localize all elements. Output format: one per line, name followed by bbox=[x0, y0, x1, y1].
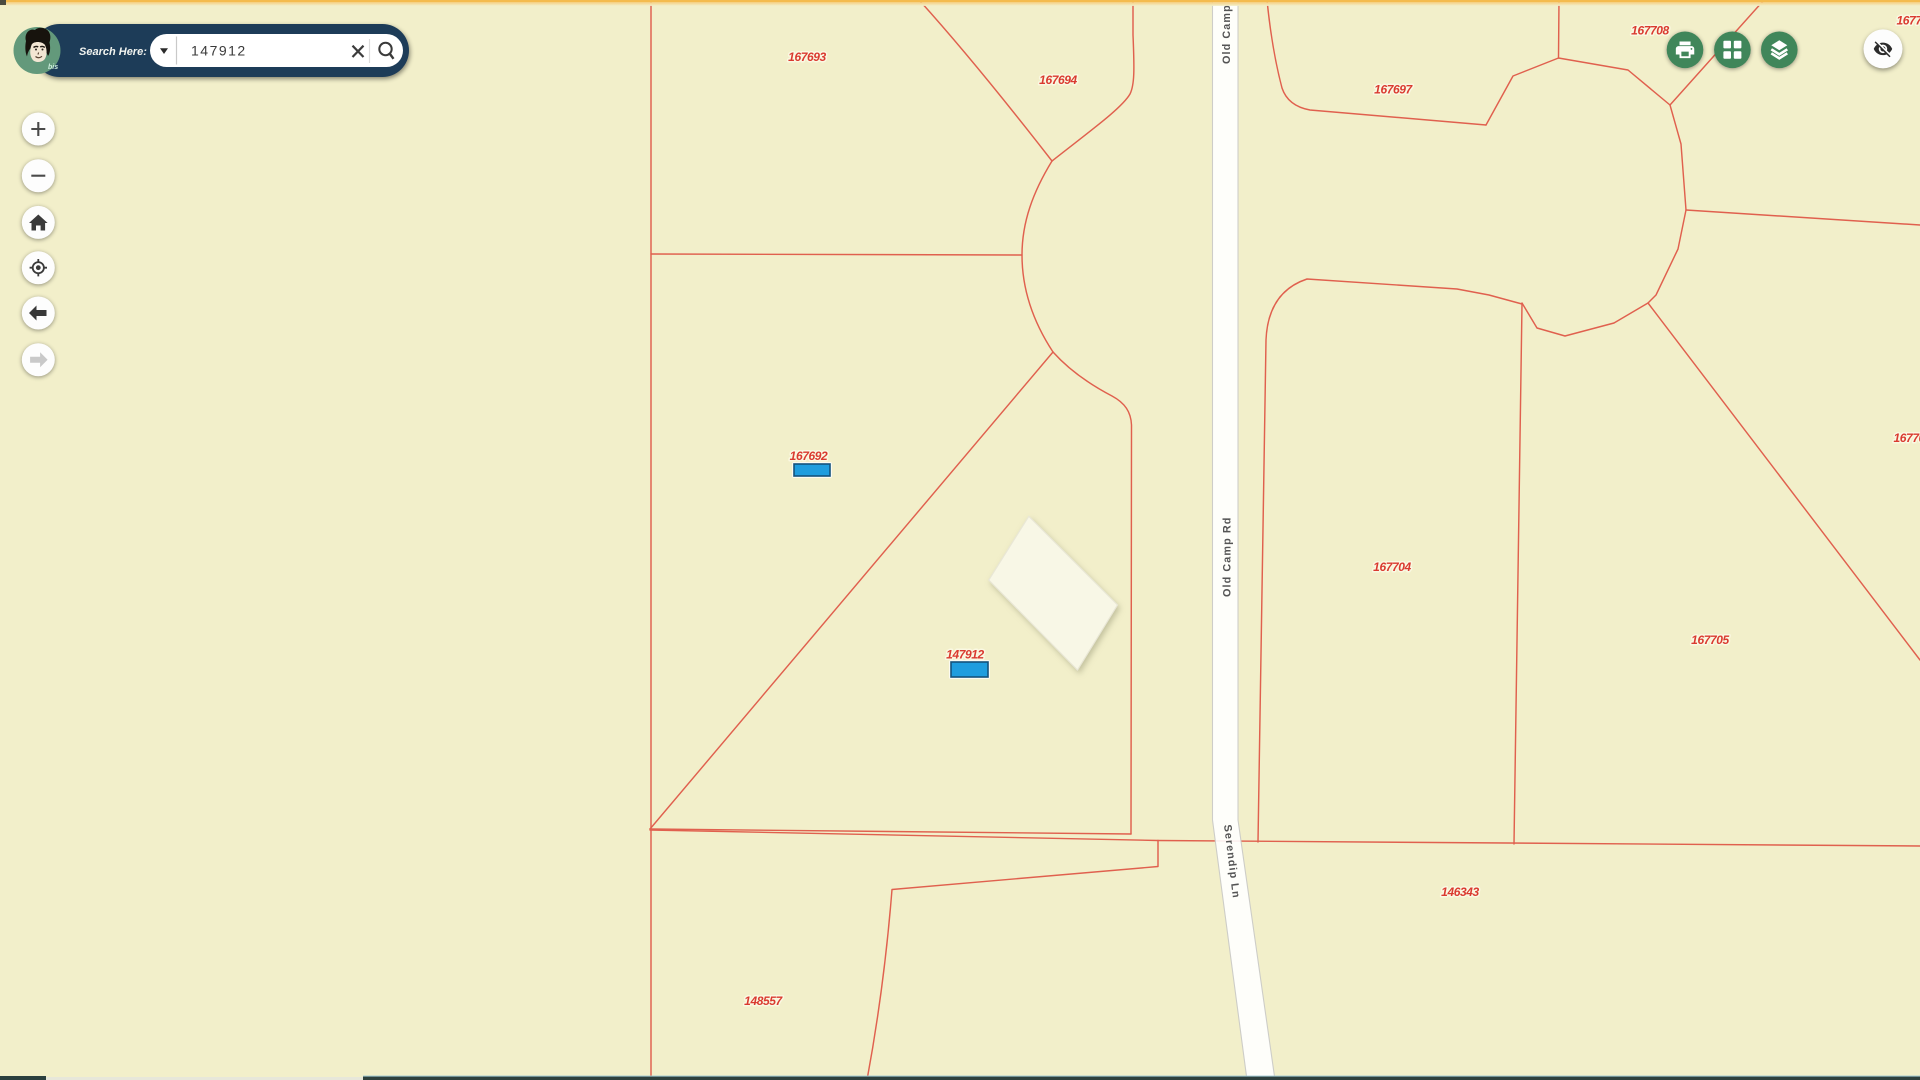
svg-text:147912: 147912 bbox=[191, 43, 247, 59]
svg-text:bis: bis bbox=[48, 64, 58, 71]
svg-text:Search Here:: Search Here: bbox=[79, 46, 147, 58]
